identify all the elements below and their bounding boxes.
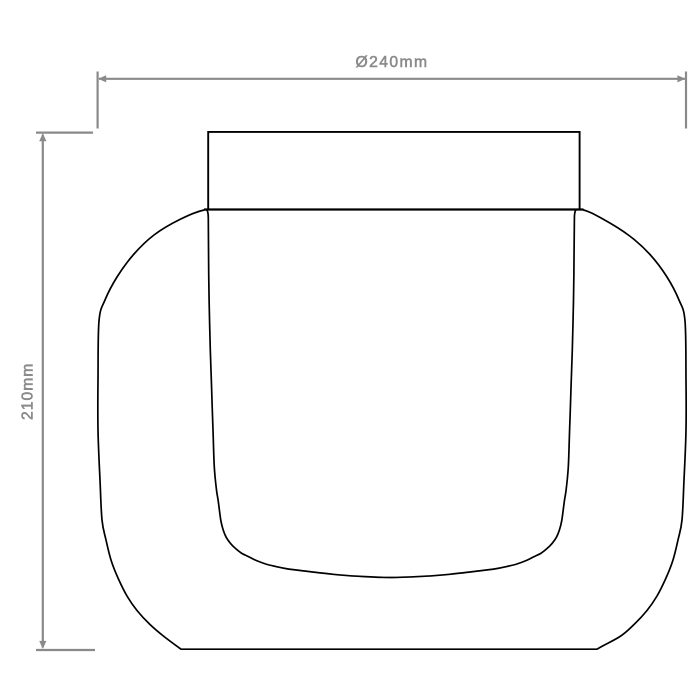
svg-text:Ø240mm: Ø240mm: [356, 54, 429, 71]
svg-text:210mm: 210mm: [20, 363, 37, 420]
